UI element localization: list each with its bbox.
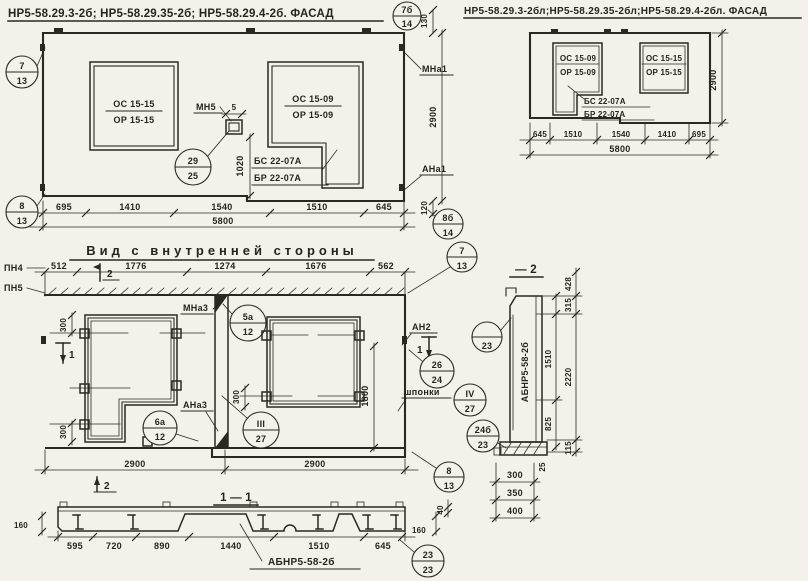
facade-left-view: ОС 15-15 ОР 15-15 ОС 15-09 ОР 15-09 БС 2…	[6, 2, 463, 239]
dim: 1676	[305, 261, 326, 271]
dim: 1510	[564, 130, 583, 139]
dim: 645	[376, 202, 392, 212]
dim-1020: 1020	[235, 155, 245, 176]
dim: 720	[106, 541, 122, 551]
window-left-mark-bottom: ОР 15-09	[560, 68, 596, 77]
callout-24b-23: 24б 23	[467, 420, 499, 452]
title-section-2: — 2	[515, 264, 537, 276]
svg-text:III: III	[257, 419, 265, 429]
svg-text:2: 2	[107, 269, 113, 280]
pn5-label: ПН5	[4, 283, 23, 293]
section-marker-2-top: 2	[93, 264, 119, 281]
dim-120: 120	[420, 201, 429, 215]
dim: 1510	[306, 202, 327, 212]
svg-text:29: 29	[188, 156, 199, 166]
mna1-leader	[404, 52, 421, 69]
ana3-leader	[206, 412, 218, 431]
callout-23: 23	[472, 322, 502, 352]
sill-mark-bottom: БР 22-07А	[254, 173, 301, 183]
inner-view: 512 1776 1274 1676 562 ПН4 ПН5 2 1	[4, 242, 486, 492]
svg-text:13: 13	[17, 216, 28, 226]
top-tab	[604, 29, 611, 33]
window-left-mark-top: ОС 15-15	[113, 99, 154, 109]
section-1-1-view: 160 160 40 595 720 890 1440 1510 645 АБН…	[14, 500, 452, 577]
panel-joint-strip	[215, 295, 228, 448]
svg-text:1: 1	[69, 350, 75, 361]
dim-115: 115	[564, 441, 573, 455]
dim-1800: 1800	[360, 385, 370, 406]
dim-428: 428	[564, 277, 573, 291]
title-facade-left: НР5-58.29.3-2б; НР5-58.29.35-2б; НР5-58.…	[8, 8, 334, 20]
callout-IV-27: IV 27	[454, 384, 486, 416]
inner-panel-outline	[45, 295, 405, 457]
facade-right-view: ОС 15-09 ОР 15-09 ОС 15-15 ОР 15-15 БС 2…	[520, 29, 728, 159]
window-right-mark-top: ОС 15-09	[292, 94, 333, 104]
anchor-plate-detail-inner	[229, 123, 239, 131]
dim: 1410	[658, 130, 677, 139]
sill-leader	[568, 86, 584, 99]
ana1-leader	[404, 176, 421, 190]
callout-leader	[176, 434, 198, 441]
svg-text:6а: 6а	[155, 417, 166, 427]
edge-plate	[399, 44, 404, 51]
dim-2220: 2220	[564, 367, 573, 386]
dim-5: 5	[232, 103, 237, 112]
lifting-hook	[506, 288, 516, 296]
svg-text:24: 24	[432, 375, 443, 385]
top-tab	[362, 28, 371, 33]
svg-text:14: 14	[443, 228, 454, 238]
svg-text:2: 2	[104, 481, 110, 492]
svg-text:13: 13	[457, 261, 468, 271]
title-section-11: 1 — 1	[220, 492, 252, 504]
mn5-label: МН5	[196, 102, 216, 112]
window-frame-right	[270, 320, 357, 404]
foot-stacked-dims: 300 350 400	[490, 463, 540, 522]
dim-400: 400	[507, 506, 523, 516]
svg-text:IV: IV	[465, 389, 474, 399]
edge-plate	[41, 336, 46, 344]
sill-mark-bottom: БР 22-07А	[584, 110, 625, 119]
sill-mark-top: БС 22-07А	[254, 156, 302, 166]
svg-text:13: 13	[444, 481, 455, 491]
svg-text:13: 13	[17, 76, 28, 86]
dim-160-left: 160	[14, 521, 28, 530]
ana3-label: АНа3	[183, 400, 207, 410]
svg-text:8б: 8б	[442, 213, 453, 223]
callout-leader	[408, 267, 450, 293]
dim: 695	[56, 202, 72, 212]
svg-text:7: 7	[459, 246, 464, 256]
dim: 645	[375, 541, 391, 551]
window-opening-right	[268, 62, 363, 188]
edge-plate	[399, 184, 404, 191]
drawing-sheet: НР5-58.29.3-2б; НР5-58.29.35-2б; НР5-58.…	[0, 0, 808, 581]
svg-text:25: 25	[188, 171, 199, 181]
svg-text:7б: 7б	[401, 5, 412, 15]
callout-23-23: 23 23	[412, 545, 444, 577]
callout-III-27: III 27	[243, 412, 279, 448]
svg-text:26: 26	[432, 360, 443, 370]
svg-text:5а: 5а	[243, 312, 254, 322]
svg-text:12: 12	[243, 327, 254, 337]
sill-leader	[322, 150, 337, 170]
svg-text:24б: 24б	[475, 425, 492, 435]
dim: 1440	[220, 541, 241, 551]
dim-25: 25	[538, 462, 547, 472]
title-facade-right: НР5-58.29.3-2бл;НР5-58.29.35-2бл;НР5-58.…	[464, 5, 767, 17]
window-right-mark-top: ОС 15-15	[646, 54, 683, 63]
top-tab	[551, 29, 558, 33]
edge-plate	[40, 184, 45, 191]
dim: 695	[692, 130, 706, 139]
callout-5a-12: 5а 12	[230, 305, 266, 341]
dim-2900: 2900	[708, 69, 718, 90]
callout-leader	[37, 194, 45, 206]
dim-2900: 2900	[428, 106, 438, 127]
svg-text:8: 8	[19, 201, 24, 211]
callout-leader	[207, 131, 229, 157]
dim: 890	[154, 541, 170, 551]
window-right-mark-bottom: ОР 15-15	[646, 68, 682, 77]
callout-7-13-inner: 7 13	[447, 242, 477, 272]
mna3-label: МНа3	[183, 303, 208, 313]
svg-text:12: 12	[155, 432, 166, 442]
dim: 1274	[214, 261, 235, 271]
dim-300: 300	[232, 390, 241, 404]
sill-mark-top: БС 22-07А	[584, 97, 626, 106]
shponki-label: шпонки	[404, 387, 440, 397]
section-panel-mark: АБНР5-58-2б	[520, 342, 530, 402]
svg-text:27: 27	[256, 434, 267, 444]
dim: 1510	[308, 541, 329, 551]
dim: 562	[378, 261, 394, 271]
title-inner-view: Вид с внутренней стороны	[86, 243, 358, 258]
svg-text:23: 23	[478, 440, 489, 450]
mna1-label: МНа1	[422, 64, 447, 74]
svg-text:23: 23	[423, 565, 434, 575]
dim: 645	[533, 130, 547, 139]
callout-8-13-inner: 8 13	[434, 462, 464, 492]
svg-text:27: 27	[465, 404, 476, 414]
svg-text:23: 23	[482, 341, 493, 351]
callout-8b-14: 8б 14	[433, 209, 463, 239]
dim-825: 825	[544, 417, 553, 431]
svg-text:14: 14	[402, 19, 413, 29]
an2-label: АН2	[412, 322, 431, 332]
dim-300: 300	[507, 470, 523, 480]
panel-drawing-canvas: НР5-58.29.3-2б; НР5-58.29.35-2б; НР5-58.…	[0, 0, 808, 581]
dim: 512	[51, 261, 67, 271]
dim: 1776	[125, 261, 146, 271]
top-tab	[621, 29, 628, 33]
section-marker-2-bottom: 2	[94, 477, 116, 492]
section-marker-1-left: 1	[56, 343, 75, 363]
dim-1510: 1510	[544, 349, 553, 368]
svg-text:23: 23	[423, 550, 434, 560]
dim-300: 300	[59, 318, 68, 332]
dim-40: 40	[436, 505, 445, 515]
dim: 1410	[119, 202, 140, 212]
window-opening-right	[267, 317, 360, 407]
section-panel-mark: АБНР5-58-2б	[268, 556, 335, 568]
dim-total: 5800	[212, 216, 233, 226]
dim-total: 5800	[609, 144, 630, 154]
svg-text:8: 8	[446, 466, 451, 476]
svg-text:1: 1	[417, 345, 423, 356]
callout-leader	[400, 540, 414, 552]
dim: 1540	[612, 130, 631, 139]
dim: 2900	[304, 459, 325, 469]
pn4-label: ПН4	[4, 263, 23, 273]
formwork-clips	[262, 331, 364, 401]
callout-7b-14: 7б 14	[393, 2, 421, 30]
dim: 595	[67, 541, 83, 551]
callout-7-13: 7 13	[6, 56, 38, 88]
dim: 2900	[124, 459, 145, 469]
foot-hatch	[504, 443, 541, 454]
svg-text:7: 7	[19, 61, 24, 71]
top-tab	[54, 28, 63, 33]
top-tab	[246, 28, 255, 33]
window-frame-right	[272, 66, 359, 184]
dim-160-right: 160	[412, 526, 426, 535]
callout-leader	[412, 452, 436, 468]
window-left-mark-top: ОС 15-09	[560, 54, 597, 63]
dim-300: 300	[59, 425, 68, 439]
mark-leader	[240, 524, 262, 561]
window-right-mark-bottom: ОР 15-09	[293, 110, 334, 120]
dim-315: 315	[564, 298, 573, 312]
pn5-leader	[27, 288, 45, 293]
ana1-label: АНа1	[422, 164, 446, 174]
window-left-mark-bottom: ОР 15-15	[114, 115, 155, 125]
dim: 1540	[211, 202, 232, 212]
callout-26-24: 26 24	[420, 354, 454, 388]
callout-29-25: 29 25	[175, 149, 211, 185]
anchor-symbols	[73, 515, 401, 529]
callout-8-13: 8 13	[6, 196, 38, 228]
callout-6a-12: 6а 12	[143, 411, 177, 445]
dim-350: 350	[507, 488, 523, 498]
